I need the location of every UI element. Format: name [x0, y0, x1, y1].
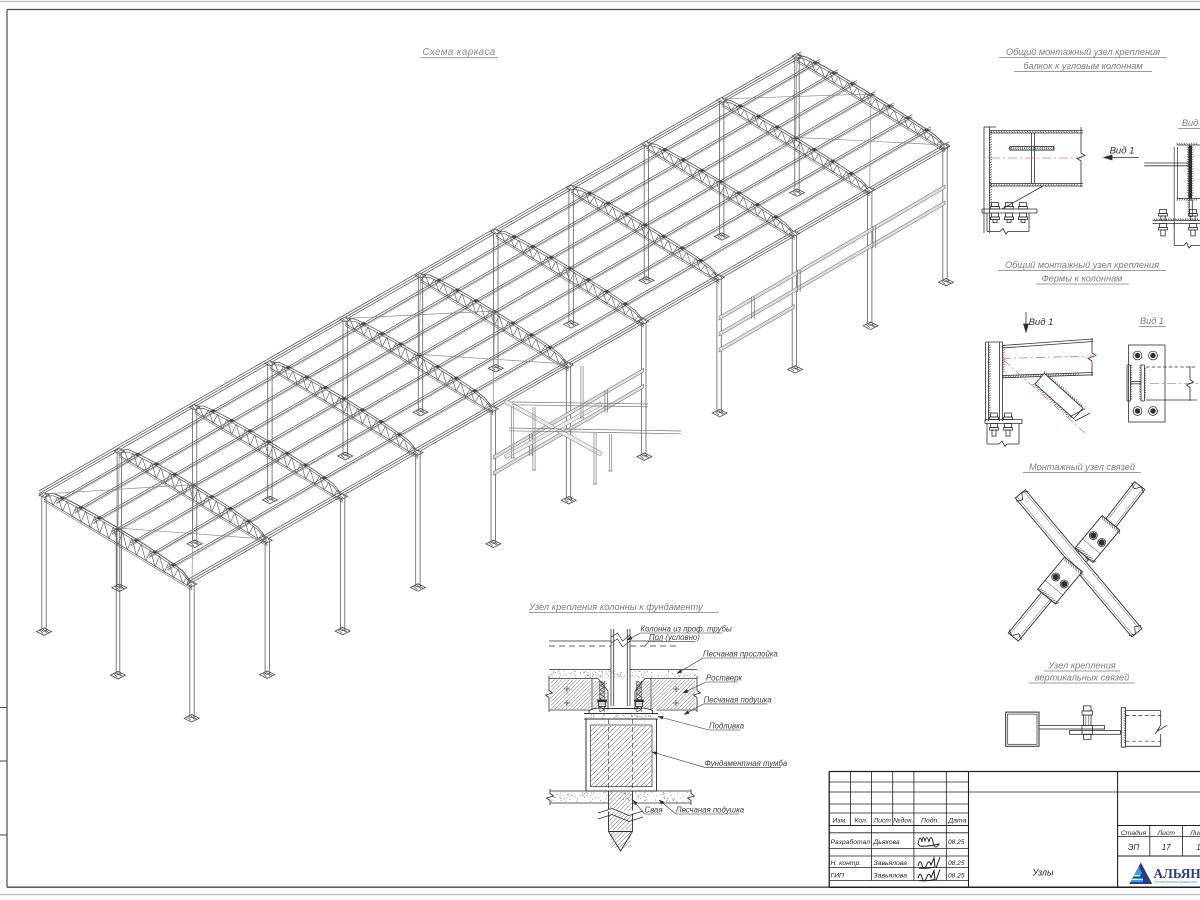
svg-text:Схема каркаса: Схема каркаса — [422, 47, 495, 58]
svg-text:Подп.: Подп. — [921, 817, 939, 825]
svg-text:Монтажный узел связей: Монтажный узел связей — [1029, 462, 1135, 472]
svg-text:строительная компания: строительная компания — [1154, 879, 1197, 884]
svg-text:Фундаментная тумба: Фундаментная тумба — [705, 759, 788, 768]
svg-text:Ростверк: Ростверк — [706, 674, 742, 683]
svg-text:Лист: Лист — [1156, 830, 1175, 837]
svg-text:№док.: №док. — [893, 817, 913, 825]
svg-text:Вид: Вид — [1182, 118, 1198, 128]
svg-text:Стадия: Стадия — [1121, 829, 1147, 837]
svg-text:17: 17 — [1162, 843, 1171, 852]
svg-text:Вид 1: Вид 1 — [1029, 317, 1054, 328]
svg-text:Лис: Лис — [1189, 830, 1200, 837]
svg-text:балкок к угловым колоннам: балкок к угловым колоннам — [1023, 61, 1143, 71]
svg-text:1: 1 — [1196, 843, 1200, 852]
svg-text:Пол (условно): Пол (условно) — [649, 633, 700, 642]
svg-text:Песчаная подушка: Песчаная подушка — [704, 695, 773, 704]
svg-text:Дьякова: Дьякова — [873, 839, 900, 846]
svg-text:ЭП: ЭП — [1128, 843, 1140, 852]
svg-text:Общий монтажный узел крепления: Общий монтажный узел крепления — [1006, 47, 1160, 57]
svg-text:Изм.: Изм. — [833, 818, 848, 825]
svg-text:Песчаная подушка: Песчаная подушка — [676, 806, 745, 815]
svg-text:Песчаная прослойка: Песчаная прослойка — [703, 650, 778, 659]
svg-text:Подливка: Подливка — [709, 722, 745, 731]
svg-text:08.25: 08.25 — [948, 839, 965, 846]
svg-text:Кол.: Кол. — [854, 818, 867, 825]
svg-text:Узлы: Узлы — [1032, 868, 1054, 878]
svg-text:Н. контр.: Н. контр. — [831, 860, 862, 867]
svg-text:Завьялова: Завьялова — [874, 860, 908, 867]
svg-text:Фермы к колоннам: Фермы к колоннам — [1042, 274, 1124, 284]
svg-text:Завьялова: Завьялова — [874, 873, 908, 880]
svg-text:Свая: Свая — [645, 806, 664, 815]
svg-text:Дата: Дата — [947, 818, 966, 825]
svg-text:Лист: Лист — [872, 818, 891, 825]
svg-text:08.25: 08.25 — [948, 860, 965, 867]
svg-text:Общий монтажный узел крепления: Общий монтажный узел крепления — [1005, 260, 1159, 270]
svg-text:Разработал: Разработал — [831, 838, 871, 846]
svg-text:Вид 1: Вид 1 — [1110, 146, 1135, 157]
svg-text:Вид 1: Вид 1 — [1140, 316, 1164, 326]
svg-text:Узел крепления: Узел крепления — [1047, 661, 1116, 671]
svg-text:ГИП: ГИП — [831, 873, 845, 880]
svg-text:08.25: 08.25 — [948, 873, 965, 880]
svg-text:Узел крепления колонны к фунда: Узел крепления колонны к фундаменту — [528, 602, 704, 612]
svg-text:вертикальных связей: вертикальных связей — [1035, 673, 1129, 683]
